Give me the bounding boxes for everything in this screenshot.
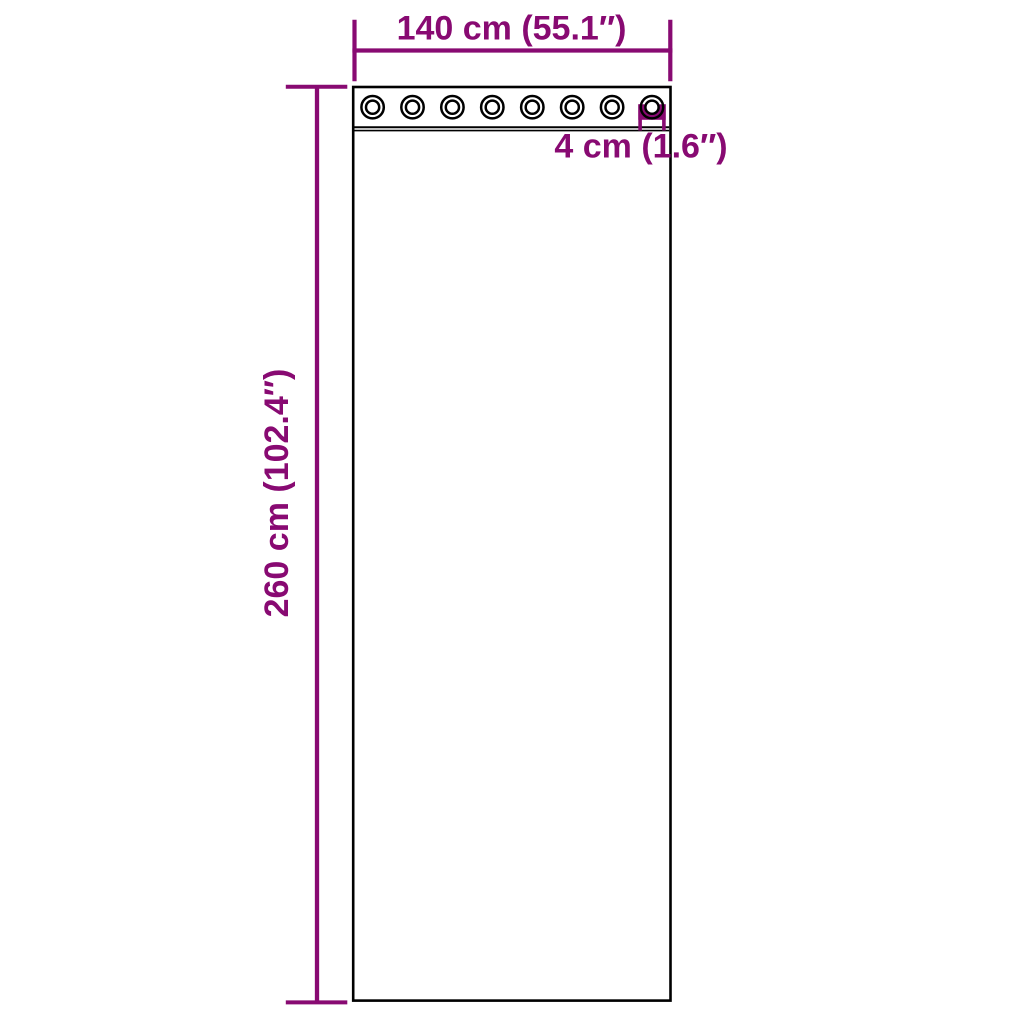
svg-text:140 cm (55.1″): 140 cm (55.1″)	[397, 9, 627, 47]
svg-text:4 cm (1.6″): 4 cm (1.6″)	[554, 128, 727, 166]
svg-text:260 cm (102.4″): 260 cm (102.4″)	[258, 369, 296, 618]
